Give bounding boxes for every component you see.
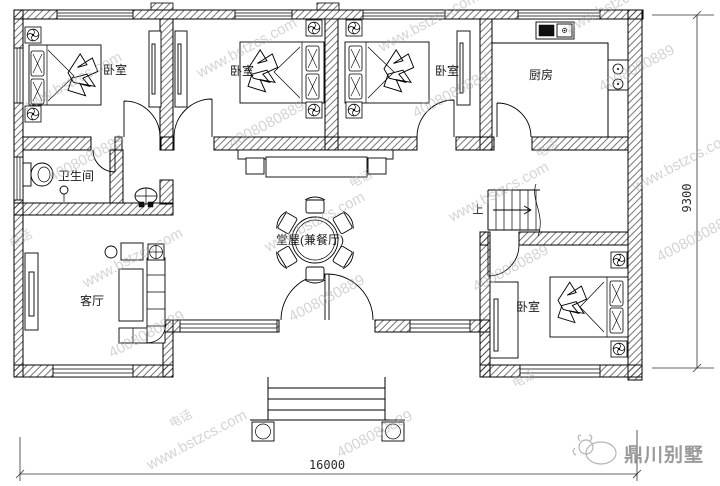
wardrobe (175, 31, 187, 107)
bedside-fan-icon (306, 20, 322, 36)
floor-plan-drawing: 卧室 卧室 卧室 厨房 卫生间 堂屋(兼餐厅) 客厅 卧室 上 16000 93… (0, 0, 720, 486)
bedroom4-label: 卧室 (516, 299, 540, 314)
living-room-label: 客厅 (80, 293, 104, 308)
porch-column (252, 422, 274, 441)
bedside-fan-icon (346, 20, 362, 36)
watermark-text: 4008080889 (654, 211, 720, 265)
coffee-table (119, 269, 143, 321)
wardrobe (490, 282, 518, 358)
wardrobe (149, 31, 161, 107)
bedside-fan-icon (306, 102, 322, 118)
brand-logo-text: 鼎川别墅 (624, 444, 704, 466)
brand-logo: 鼎川别墅 (573, 435, 704, 466)
floor-plan-page: 卧室 卧室 卧室 厨房 卫生间 堂屋(兼餐厅) 客厅 卧室 上 16000 93… (0, 0, 720, 486)
watermark-text: 4008080889 (286, 271, 368, 325)
watermark-text: www.bstzcs.com (629, 128, 720, 196)
depth-dimension: 9300 (680, 184, 694, 213)
sheep-logo-icon (573, 435, 616, 464)
watermark-text: 电话 (167, 407, 195, 431)
bedside-fan-icon (611, 252, 627, 268)
watermark-text: www.bstzcs.com (143, 406, 250, 474)
floor-drain-icon (60, 186, 68, 202)
kitchen-label: 厨房 (529, 67, 553, 82)
plant-icon (105, 246, 117, 258)
tv-stand (25, 253, 38, 330)
bedside-fan-icon (25, 27, 41, 43)
width-dimension: 16000 (309, 458, 345, 472)
bedroom2-label: 卧室 (230, 63, 254, 78)
bedroom3-label: 卧室 (435, 63, 459, 78)
bedside-fan-icon (611, 341, 627, 357)
bedside-fan-icon (346, 102, 362, 118)
